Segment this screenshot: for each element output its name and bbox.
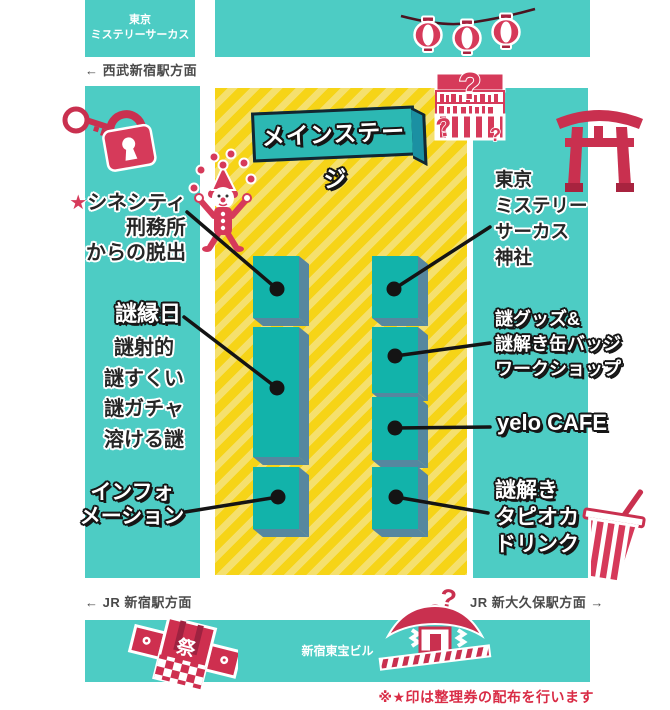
booth-right-2 [372, 327, 418, 393]
booth-left-3 [253, 467, 299, 529]
ticket-star-icon: ★ [69, 192, 87, 214]
festival-stall-icon: ? ? ? [428, 53, 512, 143]
lantern-string-icon [398, 3, 538, 58]
label-nazo-ennichi-title: 謎縁日 [100, 301, 196, 326]
footnote: ※★印は整理券の配布を行います [378, 687, 594, 707]
tmc-building-label: 東京 ミステリーサーカス [85, 0, 195, 43]
key-padlock-icon [56, 90, 161, 175]
clown-icon [186, 146, 258, 254]
direction-seibu-shinjuku: ← 西武新宿駅方面 [85, 60, 197, 79]
label-nazo-goods-workshop: 謎グッズ& 謎解き缶バッジ ワークショップ [495, 307, 655, 382]
main-stage: メインステージ [251, 105, 416, 162]
tmc-building-block: 東京 ミステリーサーカス [85, 0, 195, 57]
label-cinecity-prison-escape: ★シネシティ 刑務所 からの脱出 [50, 166, 186, 266]
booth-left-2 [253, 327, 299, 457]
happi-coat-icon: 祭 [126, 616, 238, 710]
booth-left-1 [253, 256, 299, 318]
shrine-icon: ? [378, 580, 493, 675]
booth-right-1 [372, 256, 418, 318]
booth-right-4 [372, 467, 418, 529]
label-tapioca-drink: 謎解き タピオカ ドリンク [495, 477, 615, 558]
label-information: インフォ メーション [73, 481, 191, 529]
label-tmc-shrine: 東京 ミステリー サーカス 神社 [495, 167, 635, 271]
question-mark-icon: ? [458, 66, 481, 108]
direction-jr-shinjuku: ← JR 新宿駅方面 [85, 592, 192, 611]
booth-right-3 [372, 397, 418, 460]
question-mark-icon: ? [490, 125, 501, 143]
label-nazo-ennichi-items: 謎射的 謎すくい 謎ガチャ 溶ける謎 [80, 333, 208, 455]
label-yelo-cafe: yelo CAFE [497, 410, 647, 435]
event-map: 東京 ミステリーサーカス ← 西武新宿駅方面 メインステージ [0, 0, 670, 710]
